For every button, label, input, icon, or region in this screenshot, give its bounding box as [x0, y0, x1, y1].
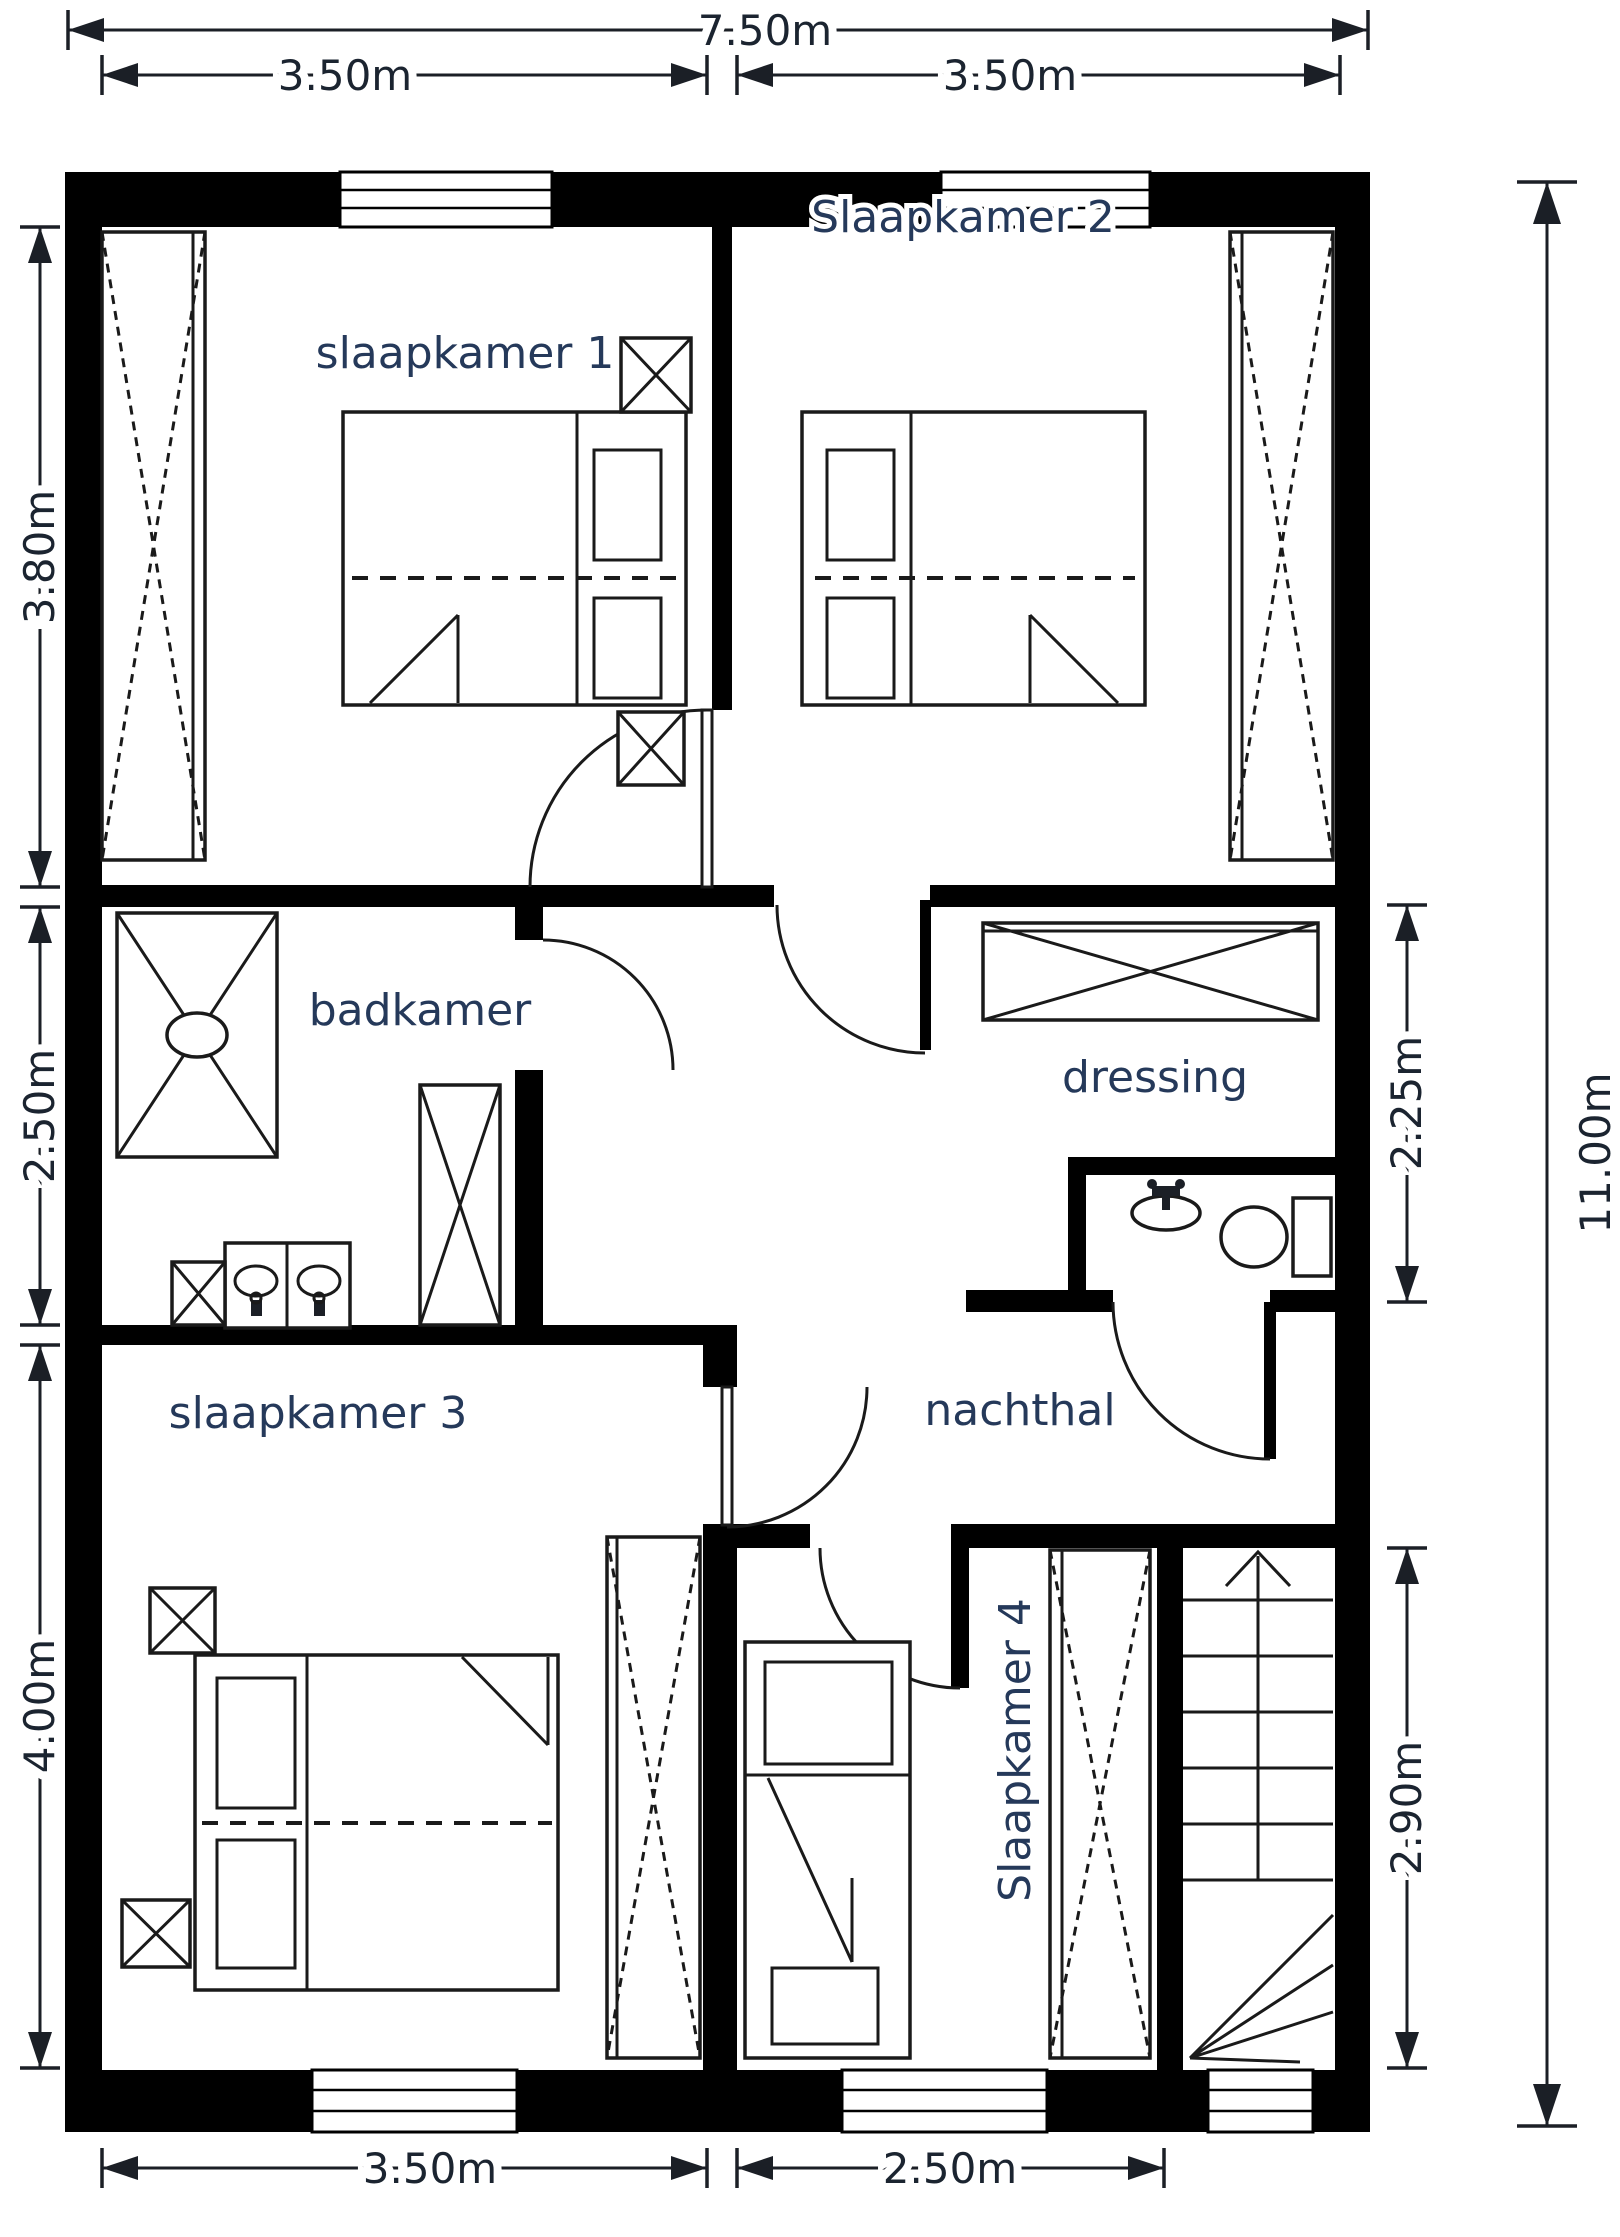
- wardrobe-icon: [1050, 1550, 1150, 2058]
- svg-text:2.90m: 2.90m: [1382, 1741, 1431, 1875]
- door-bedroom2: [777, 900, 931, 1053]
- dim-top-left: 3.50m: [102, 51, 707, 100]
- furniture-bathroom: [117, 913, 500, 1328]
- door-leaf-icon: [951, 1548, 969, 1688]
- wall-bedroom1-bathroom: [102, 885, 774, 907]
- wall-bedroom3-bedroom4: [703, 1524, 737, 2070]
- dim-bottom-left: 3.50m: [102, 2144, 707, 2193]
- door-swing-arc-icon: [1113, 1302, 1270, 1459]
- bed-icon: [343, 412, 686, 705]
- wall-bathroom-east: [515, 1070, 543, 1342]
- double-washbasin-icon: [225, 1243, 350, 1328]
- wall-bedroom4-north-left: [703, 1524, 810, 1548]
- dim-left-middle: 2.50m: [15, 907, 64, 1325]
- stairs-icon: [1183, 1552, 1333, 2062]
- wall-bedroom2-dressing: [930, 885, 1335, 907]
- wall-bathroom-east-stub: [515, 905, 543, 940]
- door-wc: [1113, 1302, 1276, 1459]
- room-label-slaapkamer4: Slaapkamer 4: [990, 1598, 1041, 1902]
- svg-text:3.50m: 3.50m: [943, 51, 1077, 100]
- bed-icon: [745, 1642, 910, 2058]
- dim-left-lower: 4.00m: [15, 1345, 64, 2068]
- svg-text:2.25m: 2.25m: [1382, 1036, 1431, 1170]
- wall-outer-bottom: [65, 2070, 1370, 2132]
- wall-hall-stub: [966, 1290, 1113, 1312]
- furniture-bedroom2: [802, 232, 1333, 860]
- door-leaf-icon: [722, 1387, 732, 1525]
- dim-top-right: 3.50m: [737, 51, 1340, 100]
- wardrobe-icon: [102, 232, 205, 860]
- svg-text:2.50m: 2.50m: [883, 2144, 1017, 2193]
- svg-text:7.50m: 7.50m: [698, 6, 832, 55]
- room-label-slaapkamer1: slaapkamer 1: [316, 328, 615, 379]
- door-swing-arc-icon: [777, 905, 925, 1053]
- door-bedroom3: [722, 1387, 867, 1527]
- wall-bedroom3-hall-stub: [703, 1345, 737, 1387]
- svg-text:11.00m: 11.00m: [1571, 1072, 1620, 1233]
- wall-bathroom-bedroom3: [102, 1325, 737, 1345]
- dim-left-upper: 3.80m: [15, 227, 64, 887]
- window-bedroom1: [340, 172, 552, 227]
- washbasin-icon: [1132, 1179, 1200, 1230]
- window-bedroom4: [842, 2070, 1047, 2132]
- svg-text:3.50m: 3.50m: [278, 51, 412, 100]
- bed-icon: [195, 1655, 558, 1990]
- tap-icon: [1162, 1194, 1170, 1210]
- stairs-winders: [1190, 1915, 1333, 2062]
- bed-icon: [802, 412, 1145, 705]
- room-label-slaapkamer3: slaapkamer 3: [169, 1388, 468, 1439]
- wall-outer-top: [65, 172, 1370, 227]
- wall-wc-north: [1068, 1157, 1335, 1175]
- door-leaf-icon: [1264, 1302, 1276, 1459]
- dim-bottom-right: 2.50m: [737, 2144, 1164, 2193]
- toilet-icon: [1221, 1198, 1331, 1276]
- wardrobe-icon: [607, 1537, 700, 2058]
- dim-right-total: 11.00m: [1517, 182, 1620, 2126]
- door-swing-arc-icon: [543, 940, 673, 1070]
- wardrobe-icon: [983, 923, 1318, 1020]
- nightstand-icon: [618, 712, 684, 785]
- side-cabinet-icon: [172, 1262, 225, 1325]
- nightstand-icon: [150, 1588, 215, 1653]
- room-label-nachthal: nachthal: [924, 1385, 1115, 1436]
- floor-plan: slaapkamer 1 Slaapkamer 2 badkamer dress…: [0, 0, 1620, 2237]
- furniture-bedroom1: [102, 232, 691, 860]
- dim-right-upper: 2.25m: [1382, 905, 1431, 1302]
- dim-top-total: 7.50m: [68, 6, 1368, 55]
- nightstand-icon: [122, 1900, 190, 1967]
- window-bedroom3: [312, 2070, 517, 2132]
- room-label-dressing: dressing: [1062, 1052, 1248, 1103]
- wall-bedroom4-stairs: [1157, 1543, 1183, 2070]
- wall-outer-right: [1335, 172, 1370, 2132]
- nightstand-icon: [621, 338, 691, 412]
- wall-bedroom1-bedroom2: [712, 227, 732, 710]
- window-stairwell: [1208, 2070, 1313, 2132]
- cabinet-icon: [420, 1085, 500, 1325]
- door-leaf-icon: [702, 710, 712, 887]
- wall-outer-left: [65, 172, 102, 2132]
- svg-text:4.00m: 4.00m: [15, 1639, 64, 1773]
- fixtures-wc: [1132, 1179, 1331, 1276]
- wall-wc-south: [1270, 1290, 1335, 1312]
- dim-right-lower: 2.90m: [1382, 1548, 1431, 2068]
- svg-text:3.80m: 3.80m: [15, 490, 64, 624]
- wardrobe-icon: [1230, 232, 1333, 860]
- door-leaf-icon: [920, 900, 931, 1050]
- door-swing-arc-icon: [727, 1387, 867, 1527]
- room-label-slaapkamer2: Slaapkamer 2: [811, 192, 1115, 243]
- furniture-bedroom3: [122, 1537, 700, 2058]
- room-label-badkamer: badkamer: [309, 985, 532, 1036]
- wall-bedroom4-north-right: [951, 1524, 1335, 1548]
- svg-text:3.50m: 3.50m: [363, 2144, 497, 2193]
- shower-icon: [117, 913, 277, 1157]
- wall-wc-west: [1068, 1157, 1086, 1302]
- furniture-dressing: [983, 923, 1318, 1020]
- svg-text:2.50m: 2.50m: [15, 1049, 64, 1183]
- furniture-bedroom4: [745, 1550, 1150, 2058]
- door-bathroom: [543, 940, 673, 1070]
